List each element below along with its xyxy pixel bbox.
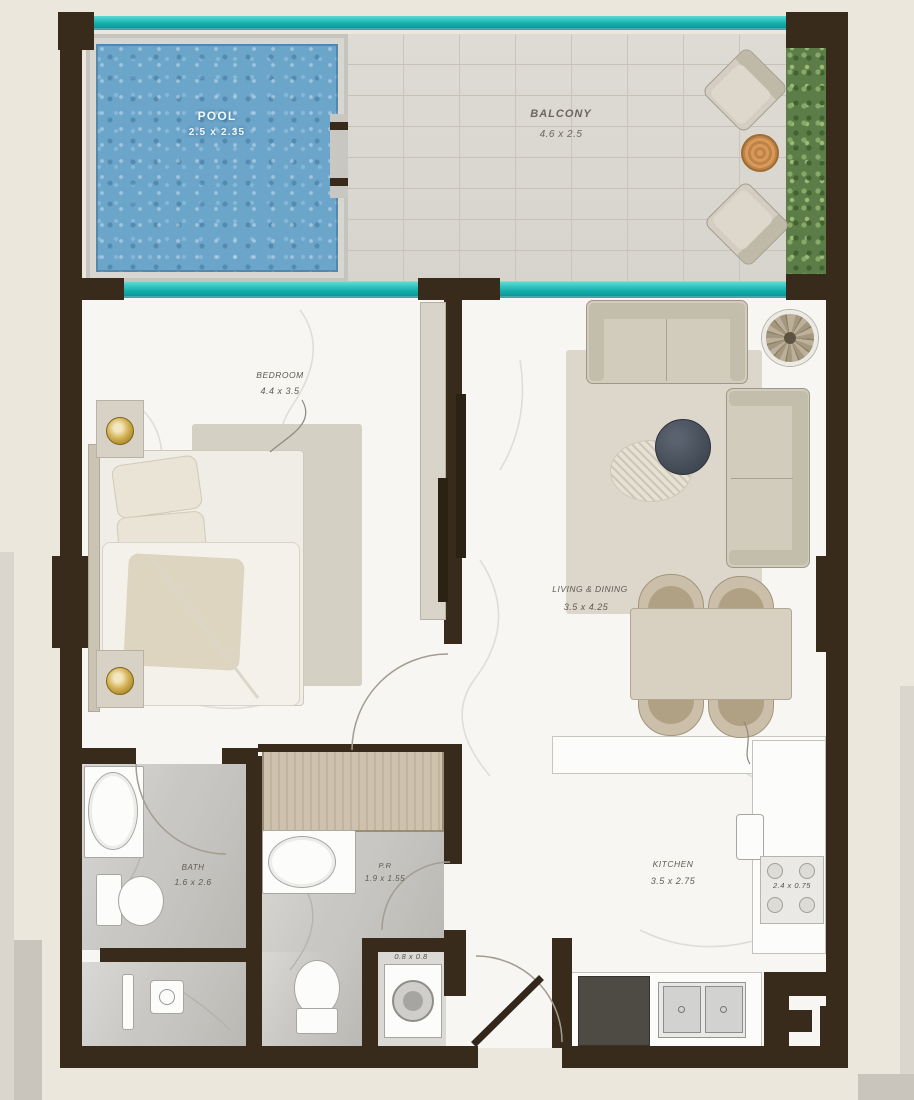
laundry-dims: 0.8 x 0.8 bbox=[378, 953, 444, 961]
double-sink bbox=[658, 982, 746, 1038]
wall-bath-pr bbox=[246, 756, 262, 1048]
balcony-dims: 4.6 x 2.5 bbox=[496, 130, 626, 140]
wardrobe bbox=[262, 748, 444, 832]
bath-dims: 1.6 x 2.6 bbox=[143, 878, 243, 887]
bg-strip-right-low bbox=[858, 1074, 914, 1100]
balcony-label: BALCONY bbox=[496, 109, 626, 120]
bedroom-dims: 4.4 x 3.5 bbox=[220, 387, 340, 396]
wall-entry-post-right bbox=[552, 938, 572, 1048]
pillar-right bbox=[816, 556, 848, 652]
sink-drain-icon bbox=[678, 1006, 685, 1013]
balcony-glass-top bbox=[80, 16, 788, 30]
wall-bottom-right bbox=[562, 1046, 848, 1068]
plant-center bbox=[784, 332, 796, 344]
pillar-left bbox=[52, 556, 88, 648]
wall-shower bbox=[100, 948, 246, 962]
sofa-back bbox=[589, 303, 745, 319]
stove bbox=[578, 976, 650, 1046]
wall-left-lower bbox=[60, 296, 82, 1068]
washer-drum-inner bbox=[403, 991, 423, 1011]
balcony-side-table bbox=[741, 134, 779, 172]
dining-table bbox=[630, 608, 792, 700]
sliding-door-panel bbox=[456, 394, 466, 558]
sliding-door-panel bbox=[438, 478, 448, 602]
burner-icon bbox=[767, 897, 783, 913]
washing-machine bbox=[384, 964, 442, 1038]
wall-hall-pr bbox=[444, 744, 462, 864]
bedroom-glass-wall bbox=[122, 282, 422, 298]
shaft-wall bbox=[820, 1006, 846, 1048]
sofa-arm bbox=[729, 391, 807, 406]
burner-icon bbox=[799, 897, 815, 913]
sofa-arm bbox=[730, 303, 745, 381]
counter-small-sink bbox=[736, 814, 764, 860]
wall-right-lower bbox=[826, 296, 848, 1068]
sofa-arm bbox=[589, 303, 604, 381]
floor-plan: 2.4 x 0.75 bbox=[0, 0, 914, 1100]
shaft-wall bbox=[764, 972, 846, 996]
pr-toilet-tank bbox=[296, 1008, 338, 1034]
counter-dims-label: 2.4 x 0.75 bbox=[756, 882, 828, 890]
sofa-seat-split bbox=[731, 478, 793, 479]
lamp-icon bbox=[106, 667, 134, 695]
pr-basin bbox=[268, 836, 336, 888]
wall-right-upper bbox=[826, 16, 848, 300]
sofa-top bbox=[586, 300, 748, 384]
wardrobe-top-line bbox=[258, 744, 448, 752]
sofa-seat-split bbox=[666, 319, 667, 381]
shaft-wall bbox=[764, 996, 789, 1048]
bedroom-label: BEDROOM bbox=[220, 371, 340, 380]
living-dining-label: LIVING & DINING bbox=[520, 585, 660, 594]
wall-laundry-top bbox=[362, 938, 458, 952]
pool-dims: 2.5 x 2.35 bbox=[152, 128, 282, 138]
sofa-right bbox=[726, 388, 810, 568]
coffee-pouf bbox=[655, 419, 711, 475]
sofa-back bbox=[792, 391, 808, 565]
powder-room-dims: 1.9 x 1.55 bbox=[335, 875, 435, 883]
cooktop bbox=[760, 856, 824, 924]
shower-rail bbox=[122, 974, 134, 1030]
sink-drain-icon bbox=[720, 1006, 727, 1013]
wall-bedroom-south-a bbox=[80, 748, 136, 764]
wall-bottom-left bbox=[60, 1046, 478, 1068]
shaft-wall bbox=[788, 1010, 812, 1032]
living-dining-dims: 3.5 x 4.25 bbox=[516, 603, 656, 612]
kitchen-dims: 3.5 x 2.75 bbox=[613, 877, 733, 886]
shower-head-center bbox=[159, 989, 175, 1005]
bath-label: BATH bbox=[143, 864, 243, 872]
powder-room-label: P.R bbox=[335, 862, 435, 870]
burner-icon bbox=[767, 863, 783, 879]
burner-icon bbox=[799, 863, 815, 879]
sofa-arm bbox=[729, 550, 807, 565]
wall-laundry-left bbox=[362, 952, 378, 1068]
lamp-icon bbox=[106, 417, 134, 445]
pool-label: POOL bbox=[152, 110, 282, 122]
bath-basin bbox=[88, 772, 138, 850]
living-glass-wall bbox=[498, 282, 788, 298]
bg-strip-left bbox=[0, 552, 14, 1100]
hedge-planter bbox=[786, 34, 828, 282]
kitchen-label: KITCHEN bbox=[613, 860, 733, 869]
wall-left-upper bbox=[60, 16, 82, 300]
pool-water bbox=[96, 44, 338, 272]
wall-balcony-lintel bbox=[418, 278, 500, 300]
bg-strip-right bbox=[900, 686, 914, 1100]
